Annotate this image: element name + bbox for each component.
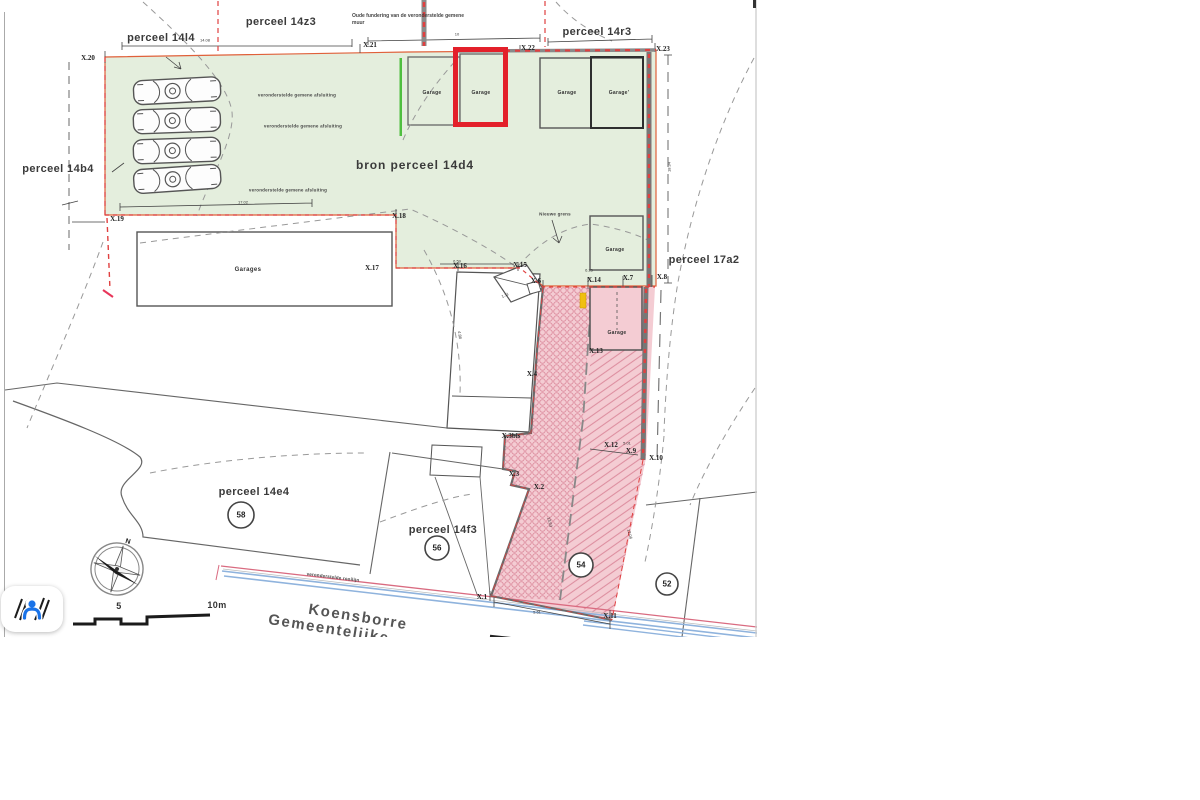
note-nieuwe-grens: Nieuwe grens bbox=[539, 212, 571, 217]
garage-label: Garage bbox=[607, 330, 626, 336]
dim-18-34: 18.34 bbox=[667, 162, 672, 172]
survey-point-x2: X.2 bbox=[534, 483, 544, 491]
lot-number-52: 52 bbox=[663, 580, 672, 589]
survey-point-x14: X.14 bbox=[587, 276, 601, 284]
dim-6-59: 6.59 bbox=[453, 259, 461, 264]
survey-point-x22: X.22 bbox=[521, 44, 535, 52]
survey-point-x3: X.3 bbox=[509, 470, 519, 478]
dim-14-08: 14.08 bbox=[200, 38, 210, 43]
garages-label: Garages bbox=[235, 267, 262, 273]
survey-point-x3bis: X.3bis bbox=[502, 432, 521, 440]
dim-17-02: 17.02 bbox=[238, 200, 248, 205]
garage-outline-pink bbox=[590, 287, 642, 350]
garage-label-prime: Garage' bbox=[609, 90, 630, 96]
survey-point-x20: X.20 bbox=[81, 54, 95, 62]
lot-number-56: 56 bbox=[433, 544, 442, 553]
note-afsluiting-2: veronderstelde gemene afsluiting bbox=[264, 124, 342, 129]
survey-point-x19: X.19 bbox=[110, 215, 124, 223]
compass-rose bbox=[85, 537, 149, 601]
label-parcel-17a2: perceel 17a2 bbox=[669, 254, 740, 266]
dim-6-25: 6.25 bbox=[585, 268, 593, 273]
survey-point-x7: X.7 bbox=[623, 274, 633, 282]
garages-building bbox=[137, 232, 392, 306]
survey-point-x11: X.11 bbox=[603, 612, 616, 620]
note-afsluiting-1: veronderstelde gemene afsluiting bbox=[258, 93, 336, 98]
label-parcel-14z3: perceel 14z3 bbox=[246, 16, 316, 28]
scale-label-10m: 10m bbox=[207, 600, 226, 610]
survey-point-x23: X.23 bbox=[656, 45, 670, 53]
lot-number-58: 58 bbox=[237, 511, 246, 520]
survey-point-x6: X.6 bbox=[531, 277, 541, 285]
lot-number-54: 54 bbox=[577, 561, 586, 570]
label-parcel-14b4: perceel 14b4 bbox=[22, 163, 93, 175]
label-bron-perceel-14d4: bron perceel 14d4 bbox=[356, 158, 474, 172]
dim-5-01: 5.01 bbox=[623, 441, 631, 446]
survey-point-x10: X.10 bbox=[649, 454, 663, 462]
survey-point-x18: X.18 bbox=[392, 212, 406, 220]
label-parcel-14l4: perceel 14l4 bbox=[127, 32, 195, 44]
label-parcel-14f3: perceel 14f3 bbox=[409, 524, 477, 536]
yellow-marker bbox=[580, 293, 586, 308]
dim-5-61: 5.61 bbox=[533, 610, 541, 615]
survey-point-x21: X.21 bbox=[363, 41, 377, 49]
survey-point-x1: X.1 bbox=[477, 593, 487, 601]
survey-point-x9: X.9 bbox=[626, 447, 636, 455]
site-plan-drawing bbox=[0, 0, 757, 637]
scale-bar bbox=[73, 615, 210, 624]
survey-point-x13: X.13 bbox=[589, 347, 603, 355]
garage-label: Garage bbox=[422, 90, 441, 96]
label-parcel-14r3: perceel 14r3 bbox=[562, 26, 631, 38]
survey-point-x15: X.15 bbox=[513, 261, 527, 269]
note-afsluiting-3: veronderstelde gemene afsluiting bbox=[249, 188, 327, 193]
garage-label: Garage bbox=[605, 247, 624, 253]
survey-point-x8: X.8 bbox=[657, 273, 667, 281]
garage-label: Garage bbox=[557, 90, 576, 96]
note-oude-fundering: Oude fundering van de veronderstelde gem… bbox=[352, 13, 470, 26]
person-icon bbox=[14, 596, 50, 622]
label-parcel-14e4: perceel 14e4 bbox=[219, 486, 290, 498]
survey-point-x12: X.12 bbox=[604, 441, 618, 449]
dim-10: 10 bbox=[455, 32, 459, 37]
green-mark bbox=[400, 58, 403, 136]
survey-point-x4: X.4 bbox=[527, 370, 537, 378]
highlight-rectangle bbox=[453, 47, 508, 127]
screenshot-stage: perceel 14l4 perceel 14z3 perceel 14r3 p… bbox=[0, 0, 1200, 800]
person-icon-button[interactable] bbox=[1, 586, 63, 632]
site-plan-sheet: perceel 14l4 perceel 14z3 perceel 14r3 p… bbox=[0, 0, 757, 637]
survey-point-x17: X.17 bbox=[365, 264, 379, 272]
scale-label-5: 5 bbox=[116, 601, 121, 611]
